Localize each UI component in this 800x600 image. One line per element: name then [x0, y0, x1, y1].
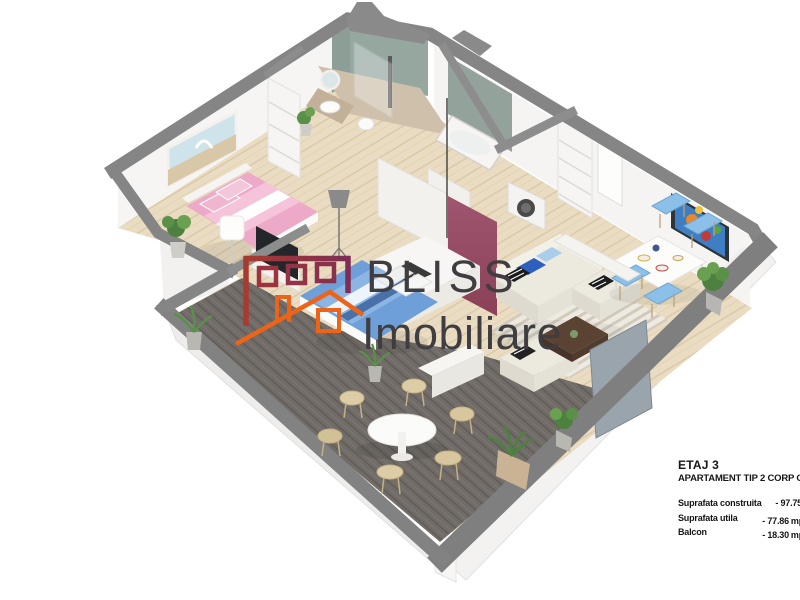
metric-value: 18.30	[767, 530, 789, 540]
info-panel: ETAJ 3 APARTAMENT TIP 2 CORP C Suprafata…	[678, 458, 800, 542]
logo-text-secondary: Imobiliare	[362, 308, 562, 359]
toilet	[358, 118, 374, 130]
table-vase	[653, 245, 660, 252]
metric-unit: mp	[791, 530, 800, 540]
metric-label: Suprafata utila	[678, 513, 738, 523]
logo-text-primary: BLISS	[366, 251, 519, 302]
metrics: Suprafata construita - 97.75 Suprafata u…	[678, 498, 800, 542]
metric-label: Balcon	[678, 527, 707, 537]
mirror	[321, 71, 339, 89]
metric-label: Suprafata construita	[678, 498, 762, 508]
metric-value: 97.75	[780, 498, 800, 508]
metric-value: 77.86	[767, 516, 789, 526]
walk-in-closet	[268, 78, 300, 178]
metric-row: Suprafata utila - 77.86mp	[678, 513, 800, 528]
metric-unit: mp	[791, 516, 800, 526]
sink	[320, 101, 340, 113]
floor-label: ETAJ 3	[678, 458, 800, 472]
metric-row: Suprafata construita - 97.75	[678, 498, 800, 513]
apartment-label: APARTAMENT TIP 2 CORP C	[678, 473, 800, 484]
metric-row: Balcon - 18.30mp	[678, 527, 800, 542]
screenshot-root: BLISS Imobiliare ETAJ 3 APARTAMENT TIP 2…	[0, 0, 800, 600]
